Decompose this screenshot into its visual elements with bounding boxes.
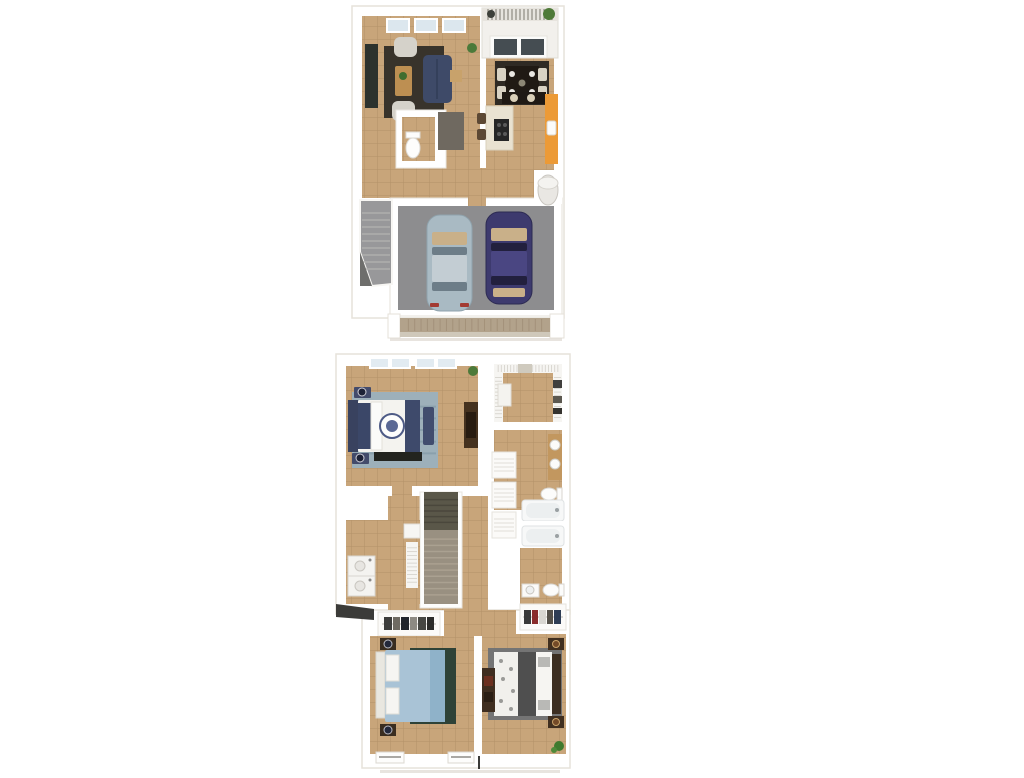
dining-chair-1 [497, 68, 506, 81]
b2-clothes-1 [384, 617, 392, 630]
floor-plan-image [0, 0, 1024, 778]
burner-1 [497, 123, 501, 127]
b3-lamp-2 [553, 719, 560, 726]
hall-tub-basin [526, 529, 560, 543]
garage-door-pier-1 [388, 314, 400, 338]
kitchen-sink [547, 121, 556, 135]
b3-floral-1 [499, 659, 503, 663]
closet-clothes-1 [553, 380, 562, 388]
b2-lamp-2 [384, 726, 392, 734]
bedroom3-plant-2 [551, 747, 557, 753]
garage-door-threshold [400, 332, 550, 337]
vanity-sink-1 [550, 440, 560, 450]
table-centerpiece [519, 80, 526, 87]
bar-stool-1 [477, 113, 486, 124]
b3-dresser-accent-1 [484, 676, 493, 686]
balcony-planter [487, 10, 495, 18]
b3-floral-2 [509, 667, 513, 671]
master-door-opening [392, 486, 412, 496]
master-bed-navy-pillows [358, 403, 371, 449]
linen-closet-2 [492, 482, 516, 508]
sideboard-basket-1 [510, 94, 518, 102]
garage-door-opening [468, 196, 486, 206]
toilet-tank [406, 132, 420, 138]
entry-hall-floor [362, 168, 554, 198]
master-lamp-2 [356, 454, 364, 462]
car-purple-windshield [491, 243, 527, 251]
bath-dividing-wall [518, 521, 568, 526]
car-silver-roof [432, 255, 467, 282]
second-floor-plan [336, 354, 570, 773]
hall-tub-faucet [555, 534, 559, 538]
bed-end-bench [423, 407, 434, 445]
master-tub-faucet [555, 508, 559, 512]
b3-dresser-accent-2 [484, 692, 493, 702]
b3-clothes-3 [539, 610, 546, 624]
under-stair-closet [438, 112, 464, 150]
master-lamp-1 [358, 388, 366, 396]
armchair-1 [394, 37, 417, 57]
floor2-ground-shadow [380, 770, 560, 773]
mbath-toilet-bowl [541, 488, 557, 500]
car-purple-rear-seat [493, 288, 525, 297]
floor-plan-svg [0, 0, 1024, 778]
b2-clothes-2 [393, 617, 400, 630]
dining-chair-3 [538, 68, 547, 81]
closet-basket [518, 364, 532, 373]
b2-clothes-4 [410, 617, 417, 630]
master-window-3 [416, 358, 435, 368]
balcony-door-glass-1 [494, 39, 517, 55]
living-window-2 [415, 19, 437, 32]
burner-3 [497, 132, 501, 136]
laundry-shelf [406, 542, 418, 588]
master-window-2 [391, 358, 410, 368]
car-silver-taillight-2 [460, 303, 469, 307]
dining-sideboard [502, 92, 546, 104]
b2-clothes-3 [401, 617, 409, 630]
water-heater-top [538, 177, 558, 189]
bedroom3-headboard [552, 654, 561, 714]
linen-closet-3 [492, 512, 516, 538]
toilet-bowl [406, 138, 420, 158]
b3-pillow-accent-1 [538, 657, 550, 667]
master-bed-throw [405, 400, 420, 452]
bedroom2-headboard [376, 652, 385, 718]
bedroom2-pillow-2 [386, 688, 399, 714]
linen-closet-1 [492, 452, 516, 478]
master-window-1 [370, 358, 389, 368]
hbath-toilet-bowl [543, 584, 559, 596]
car-purple-rear-window [491, 276, 527, 285]
living-window-3 [443, 19, 465, 32]
balcony-door-glass-2 [521, 39, 544, 55]
hbath-toilet-tank [559, 584, 564, 596]
b3-floral-6 [509, 707, 513, 711]
car-purple-seats [491, 228, 527, 241]
burner-4 [503, 132, 507, 136]
car-silver-taillight-1 [430, 303, 439, 307]
living-window-1 [387, 19, 409, 32]
dryer-door [355, 581, 365, 591]
island-cooktop [494, 119, 509, 141]
sideboard-basket-2 [527, 94, 535, 102]
media-console [365, 44, 378, 108]
b3-floral-4 [511, 689, 515, 693]
first-floor-plan [352, 6, 564, 341]
living-corner-plant [467, 43, 477, 53]
washer-knob [369, 559, 372, 562]
sofa-side-table [450, 70, 462, 82]
garage-door-pier-2 [550, 314, 564, 338]
place-setting-1 [509, 71, 515, 77]
mbath-toilet-tank [557, 488, 562, 500]
b3-pillow-accent-2 [538, 700, 550, 710]
b3-clothes-4 [547, 610, 553, 624]
balcony-plant [543, 8, 555, 20]
car-silver-windshield [432, 247, 467, 255]
master-tub-basin [526, 503, 560, 518]
bedroom3-dresser [482, 668, 495, 712]
laundry-cabinet [404, 524, 420, 538]
car-silver-rear-window [432, 282, 467, 291]
b3-lamp-1 [553, 641, 560, 648]
master-bed-headboard [348, 400, 358, 452]
master-window-4 [437, 358, 456, 368]
b2-clothes-6 [427, 617, 434, 630]
b3-clothes-5 [554, 610, 561, 624]
place-setting-2 [529, 71, 535, 77]
b3-floral-5 [499, 699, 503, 703]
bedroom-hall-floor [444, 610, 516, 636]
coffee-table [395, 66, 412, 96]
b2-clothes-5 [418, 617, 426, 630]
b3-floral-3 [501, 677, 505, 681]
bedroom3-bed-foot [494, 652, 518, 716]
coffee-table-plant [399, 72, 407, 80]
duvet-medallion-inner [386, 420, 398, 432]
bedroom2-pillow-1 [386, 655, 399, 681]
closet-clothes-3 [553, 408, 562, 414]
dryer-knob [369, 579, 372, 582]
closet-clothes-2 [553, 396, 562, 403]
burner-2 [503, 123, 507, 127]
car-purple-roof [491, 251, 527, 276]
master-plant [468, 366, 478, 376]
master-tv [466, 412, 476, 438]
b3-clothes-1 [524, 610, 531, 624]
bedroom3-bed-runner [518, 652, 536, 716]
master-rug-border [374, 452, 422, 461]
b2-lamp-1 [384, 640, 392, 648]
garage-door-panel [400, 318, 550, 332]
vanity-sink-2 [550, 459, 560, 469]
floor1-ground-shadow [390, 338, 562, 341]
b3-clothes-2 [532, 610, 538, 624]
closet-hamper [498, 384, 511, 406]
washer-door [355, 561, 365, 571]
stairs-lower-flight [424, 530, 458, 604]
bar-stool-2 [477, 129, 486, 140]
hbath-sink [526, 586, 534, 594]
car-silver-seats [432, 232, 467, 245]
bedroom2-duvet-fold [430, 650, 445, 722]
